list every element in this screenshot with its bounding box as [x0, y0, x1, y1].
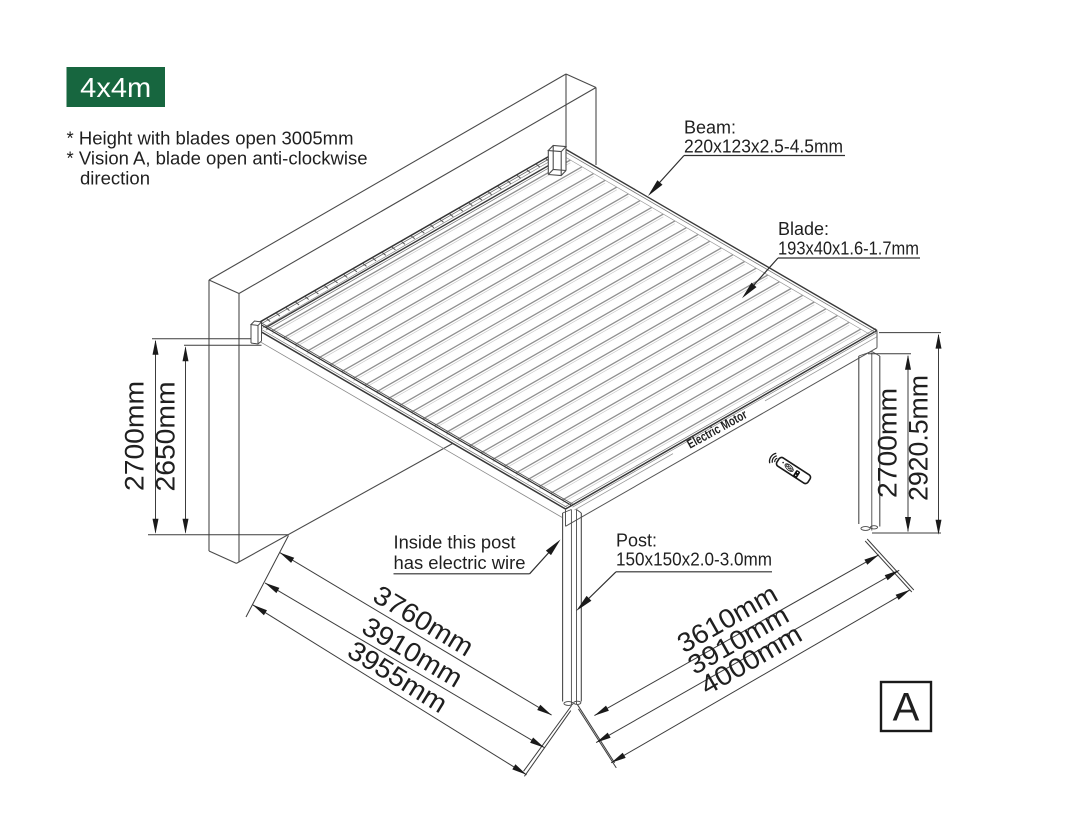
- svg-text:193x40x1.6-1.7mm: 193x40x1.6-1.7mm: [778, 239, 919, 259]
- svg-text:* Vision A, blade open anti-cl: * Vision A, blade open anti-clockwise: [67, 148, 368, 169]
- svg-text:4x4m: 4x4m: [80, 72, 151, 103]
- svg-text:2650mm: 2650mm: [151, 382, 181, 492]
- svg-text:2700mm: 2700mm: [120, 381, 150, 491]
- svg-text:direction: direction: [80, 168, 150, 189]
- svg-text:Inside this post: Inside this post: [394, 533, 516, 553]
- svg-text:150x150x2.0-3.0mm: 150x150x2.0-3.0mm: [616, 550, 772, 570]
- svg-text:A: A: [893, 686, 920, 730]
- svg-text:* Height with blades open 3005: * Height with blades open 3005mm: [67, 128, 354, 149]
- svg-text:has electric wire: has electric wire: [394, 553, 526, 573]
- svg-text:2920.5mm: 2920.5mm: [904, 375, 934, 501]
- svg-text:220x123x2.5-4.5mm: 220x123x2.5-4.5mm: [684, 137, 843, 157]
- svg-text:2700mm: 2700mm: [873, 388, 903, 498]
- svg-text:Blade:: Blade:: [778, 219, 829, 239]
- svg-text:Post:: Post:: [616, 531, 657, 551]
- svg-text:Beam:: Beam:: [684, 118, 736, 138]
